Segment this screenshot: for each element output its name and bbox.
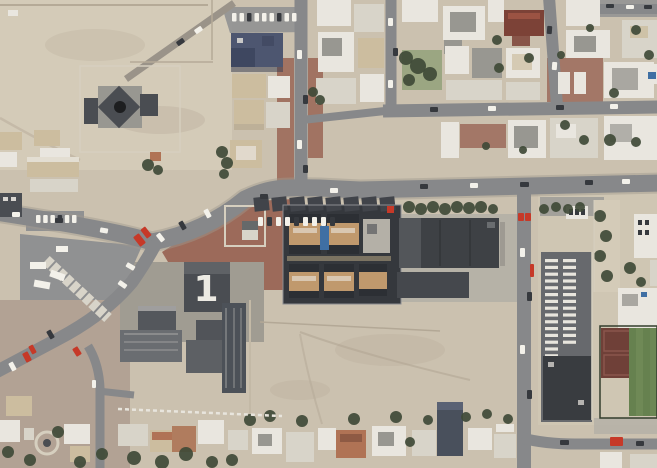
swimming-pool — [320, 226, 329, 250]
car-white — [520, 248, 525, 257]
building — [324, 291, 354, 298]
car-white — [72, 215, 77, 223]
swimming-pool — [641, 292, 647, 297]
roof-unit — [563, 334, 576, 337]
building — [27, 157, 79, 162]
tree — [52, 426, 64, 438]
tree — [390, 411, 402, 423]
building — [354, 4, 384, 32]
tree — [604, 134, 616, 146]
car-white — [276, 217, 281, 226]
building — [262, 36, 274, 46]
car-white — [65, 215, 70, 223]
building — [231, 67, 283, 72]
building — [358, 38, 384, 68]
building — [258, 434, 272, 446]
car-white — [12, 212, 20, 217]
roof-unit — [563, 307, 576, 310]
tree — [601, 270, 613, 282]
roof-unit — [563, 279, 576, 282]
car-dark — [520, 182, 529, 187]
car-dark — [420, 184, 428, 189]
tree — [2, 446, 14, 458]
car-white — [303, 217, 308, 226]
roof-unit — [563, 273, 576, 276]
building — [6, 396, 32, 416]
building — [120, 330, 182, 362]
car-dark — [547, 26, 553, 34]
car-white — [43, 215, 48, 223]
tree — [624, 262, 636, 274]
building — [506, 82, 540, 100]
car-white — [292, 13, 297, 22]
building — [8, 10, 18, 16]
building — [140, 94, 158, 116]
roof-unit — [545, 347, 558, 350]
building — [500, 222, 505, 266]
car-dark — [606, 4, 614, 8]
car-dark — [560, 440, 569, 445]
building — [324, 264, 354, 272]
tree — [586, 24, 594, 32]
tree — [403, 201, 415, 213]
roof-number-label: 1 — [193, 269, 218, 310]
tree — [405, 437, 415, 447]
car-dark — [644, 5, 652, 9]
roof-unit — [545, 341, 558, 344]
compound-stub-lane — [98, 391, 134, 395]
car-white — [312, 217, 317, 226]
roof-unit — [545, 279, 558, 282]
car-white — [50, 215, 55, 223]
tree — [315, 95, 325, 105]
parking-canopy — [558, 72, 570, 94]
car-dark — [393, 48, 398, 56]
tree — [74, 456, 86, 468]
car-dark — [585, 180, 593, 185]
tree — [206, 456, 218, 468]
tree — [594, 210, 606, 222]
roof-unit — [563, 313, 576, 316]
tree — [216, 146, 228, 158]
tree — [631, 25, 641, 35]
roof-unit — [545, 334, 558, 337]
building — [228, 430, 248, 450]
roof-unit — [545, 320, 558, 323]
building — [378, 432, 394, 446]
building — [412, 430, 436, 456]
sports-courts — [601, 328, 633, 378]
shade-canopy — [361, 196, 377, 211]
tree — [127, 451, 141, 465]
car-white — [470, 183, 478, 188]
car-dark — [527, 390, 532, 399]
building — [638, 230, 642, 235]
tree — [519, 146, 527, 154]
tree — [221, 157, 233, 169]
layer-text-labels: 1 — [193, 269, 218, 310]
building — [327, 245, 359, 254]
shade-canopy — [325, 196, 341, 211]
shade-canopy — [343, 196, 359, 211]
tree — [636, 277, 646, 287]
building — [548, 362, 554, 367]
car-white — [622, 179, 630, 184]
car-dark — [527, 292, 532, 301]
shade-canopy — [271, 196, 287, 211]
building — [441, 122, 459, 158]
tree — [560, 120, 570, 130]
car-dark — [267, 217, 272, 226]
tree — [557, 51, 565, 59]
building — [234, 124, 264, 130]
building — [318, 428, 336, 450]
building — [397, 272, 469, 298]
building — [289, 264, 319, 272]
building — [3, 197, 8, 201]
parked-bus — [56, 246, 68, 252]
car-dark — [294, 217, 299, 226]
roof-unit — [545, 313, 558, 316]
building — [450, 12, 476, 32]
tree — [482, 409, 492, 419]
building — [292, 276, 316, 281]
tree — [96, 448, 108, 460]
building — [468, 428, 492, 450]
building — [0, 152, 17, 167]
building — [488, 0, 504, 22]
building — [645, 220, 649, 225]
building — [399, 218, 421, 268]
building — [612, 68, 638, 90]
building — [512, 36, 530, 46]
building — [0, 132, 22, 150]
car-dark — [303, 95, 308, 104]
tree — [451, 201, 463, 213]
building — [24, 428, 34, 440]
building — [268, 76, 290, 98]
building — [138, 306, 176, 311]
car-dark — [247, 13, 252, 22]
car-white — [232, 13, 237, 22]
car-dark — [277, 13, 282, 22]
building — [34, 130, 60, 146]
tree — [219, 169, 229, 179]
building — [638, 220, 642, 225]
building — [289, 245, 321, 254]
car-white — [297, 50, 302, 59]
car-white — [488, 106, 496, 111]
tree — [415, 203, 427, 215]
roof-unit — [545, 259, 558, 262]
tree — [403, 74, 415, 86]
tree — [644, 50, 654, 60]
building — [359, 264, 387, 272]
sand-terrain — [335, 334, 445, 366]
building — [322, 38, 342, 56]
building — [242, 221, 258, 230]
satellite-map-viewport[interactable]: 1 — [0, 0, 657, 468]
building — [437, 402, 463, 410]
sand-terrain — [270, 380, 330, 400]
car-white — [388, 18, 393, 26]
roof-unit — [545, 273, 558, 276]
roof-unit — [545, 327, 558, 330]
tree — [153, 165, 163, 175]
parking-canopy — [574, 72, 586, 94]
tree — [463, 202, 475, 214]
parked-car-row — [258, 217, 335, 226]
roof-unit — [563, 300, 576, 303]
tree — [563, 204, 573, 214]
tree — [439, 203, 451, 215]
car-white — [92, 380, 96, 388]
building — [437, 402, 463, 456]
building — [446, 80, 502, 100]
car-white — [36, 215, 41, 223]
building — [114, 101, 126, 113]
building — [118, 424, 148, 446]
tree — [551, 202, 561, 212]
tree — [423, 67, 437, 81]
tree — [600, 230, 612, 242]
red-sidewalk-east — [308, 58, 323, 158]
tree — [24, 454, 36, 466]
tree — [142, 159, 154, 171]
building — [514, 126, 538, 148]
parked-bus — [30, 262, 46, 269]
roof-unit — [545, 300, 558, 303]
car-white — [258, 217, 263, 226]
building — [327, 276, 351, 281]
building — [0, 420, 20, 442]
roof-unit — [563, 286, 576, 289]
car-dark — [260, 194, 268, 199]
car-white — [285, 13, 290, 22]
tree — [423, 415, 433, 425]
car-white — [285, 217, 290, 226]
tree — [594, 250, 606, 262]
tree — [524, 53, 534, 63]
building — [64, 424, 90, 444]
building — [198, 420, 224, 444]
car-white — [297, 140, 302, 149]
building — [286, 432, 314, 462]
building — [11, 197, 16, 201]
building — [43, 439, 51, 447]
tree — [492, 35, 502, 45]
car-white — [240, 13, 245, 22]
building — [445, 46, 469, 74]
car-dark — [330, 217, 335, 226]
car-dark — [556, 105, 564, 110]
vehicle-red — [525, 213, 531, 221]
roof-unit — [563, 293, 576, 296]
roof-unit — [545, 266, 558, 269]
car-white — [262, 13, 267, 22]
building — [289, 291, 319, 298]
tree — [482, 142, 490, 150]
shade-canopy — [289, 196, 305, 211]
car-white — [388, 80, 393, 88]
roof-unit — [545, 307, 558, 310]
sand-terrain — [45, 29, 145, 61]
shade-canopy — [307, 196, 323, 211]
car-white — [552, 62, 558, 70]
roof-unit — [563, 320, 576, 323]
tree — [575, 202, 585, 212]
tree — [427, 201, 439, 213]
car-white — [610, 104, 618, 109]
car-dark — [430, 107, 438, 112]
vehicle-red — [518, 213, 524, 221]
building — [317, 0, 351, 26]
roof-unit — [563, 266, 576, 269]
building — [331, 228, 355, 233]
tree — [461, 412, 471, 422]
tree — [348, 413, 360, 425]
building — [508, 13, 540, 19]
building — [622, 294, 638, 306]
building — [650, 328, 657, 416]
tree — [503, 414, 513, 424]
north-street-c — [549, 0, 557, 106]
tree — [308, 87, 318, 97]
red-canopy-marker — [387, 206, 394, 213]
roof-unit — [563, 259, 576, 262]
roof-unit — [563, 341, 576, 344]
building — [566, 0, 600, 26]
tree — [179, 447, 193, 461]
building — [650, 260, 657, 286]
roof-unit — [545, 293, 558, 296]
car-white — [270, 13, 275, 22]
satellite-imagery: 1 — [0, 0, 657, 468]
car-white — [330, 188, 338, 193]
service-lane — [594, 418, 657, 434]
building — [340, 434, 362, 442]
roof-unit — [563, 327, 576, 330]
building — [630, 454, 657, 468]
building — [578, 400, 584, 405]
tree — [631, 137, 641, 147]
tree — [475, 201, 487, 213]
building — [645, 230, 649, 235]
swimming-pool — [648, 72, 656, 79]
tree — [494, 63, 504, 73]
building — [402, 0, 438, 22]
building — [150, 152, 161, 161]
building — [494, 434, 516, 458]
tree — [296, 415, 308, 427]
car-white — [626, 5, 634, 9]
car-dark — [636, 441, 644, 446]
roof-unit — [545, 286, 558, 289]
building — [237, 38, 243, 43]
car-white — [255, 13, 260, 22]
tree — [609, 88, 619, 98]
tree — [579, 135, 589, 145]
tree — [226, 454, 238, 466]
tree — [488, 204, 498, 214]
car-white — [321, 217, 326, 226]
building — [360, 74, 384, 102]
building — [232, 74, 266, 98]
tree — [539, 204, 549, 214]
building — [231, 48, 255, 67]
building — [496, 424, 514, 432]
building — [472, 48, 502, 78]
car-dark — [303, 165, 308, 173]
vehicle-red — [530, 264, 534, 277]
building — [359, 289, 387, 296]
building — [636, 328, 643, 416]
building — [600, 452, 622, 468]
building — [293, 228, 317, 233]
building — [30, 179, 78, 192]
building — [574, 36, 596, 52]
car-dark — [58, 215, 63, 223]
building — [266, 102, 290, 128]
building — [236, 146, 256, 160]
building — [487, 222, 495, 228]
parked-car-row — [232, 13, 297, 22]
vehicle-red — [610, 437, 623, 446]
building — [367, 224, 377, 234]
building — [287, 256, 391, 261]
car-white — [520, 345, 525, 354]
building — [152, 432, 172, 440]
